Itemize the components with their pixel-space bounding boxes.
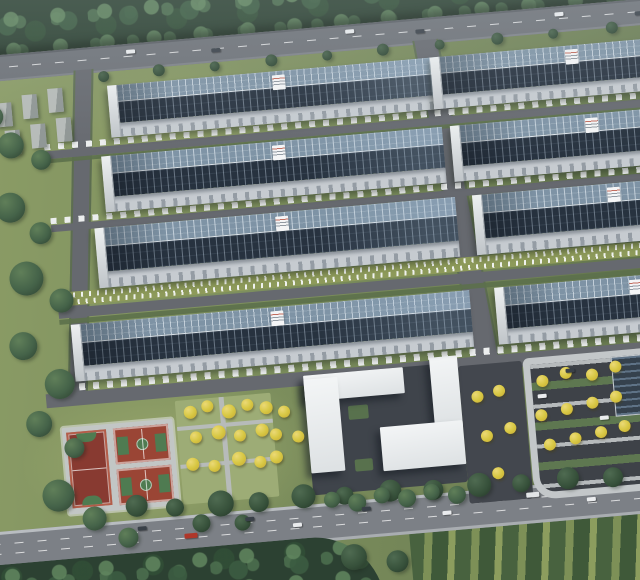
warehouse-left-row4 (71, 290, 474, 382)
vehicle-white (538, 394, 547, 399)
vehicle-white (587, 497, 596, 502)
vehicle-dark (635, 11, 640, 16)
campus-ground (0, 0, 640, 580)
warehouse-grid (0, 0, 640, 580)
vehicle-dark (211, 48, 220, 53)
warehouse-right-row2 (450, 96, 640, 182)
roof-sign (275, 216, 289, 232)
vehicle-dark (362, 506, 371, 511)
roof-sign (629, 279, 640, 295)
warehouse-right-row3 (472, 167, 640, 255)
roof-sign (272, 74, 286, 90)
warehouse-left-row3 (94, 197, 460, 288)
vehicle-dark (415, 29, 424, 34)
vehicle-white (126, 49, 135, 54)
vehicle-white (293, 522, 302, 527)
vehicle-dark (245, 517, 254, 522)
warehouse-left-row2 (101, 127, 447, 213)
roof-sign (272, 145, 286, 161)
vehicle-white (442, 510, 451, 515)
vehicle-dark (565, 368, 574, 373)
warehouse-right-row4 (494, 260, 640, 344)
vehicle-white (554, 12, 563, 17)
vehicle-white (345, 29, 354, 34)
roof-sign (607, 187, 621, 203)
roof-sign (585, 117, 599, 133)
warehouse-right-row1 (430, 26, 640, 109)
roof-sign (565, 49, 579, 65)
aerial-site-rendering (0, 0, 640, 580)
vehicle-white (600, 415, 609, 420)
vehicle-dark (138, 526, 147, 531)
roof-sign (270, 310, 284, 326)
